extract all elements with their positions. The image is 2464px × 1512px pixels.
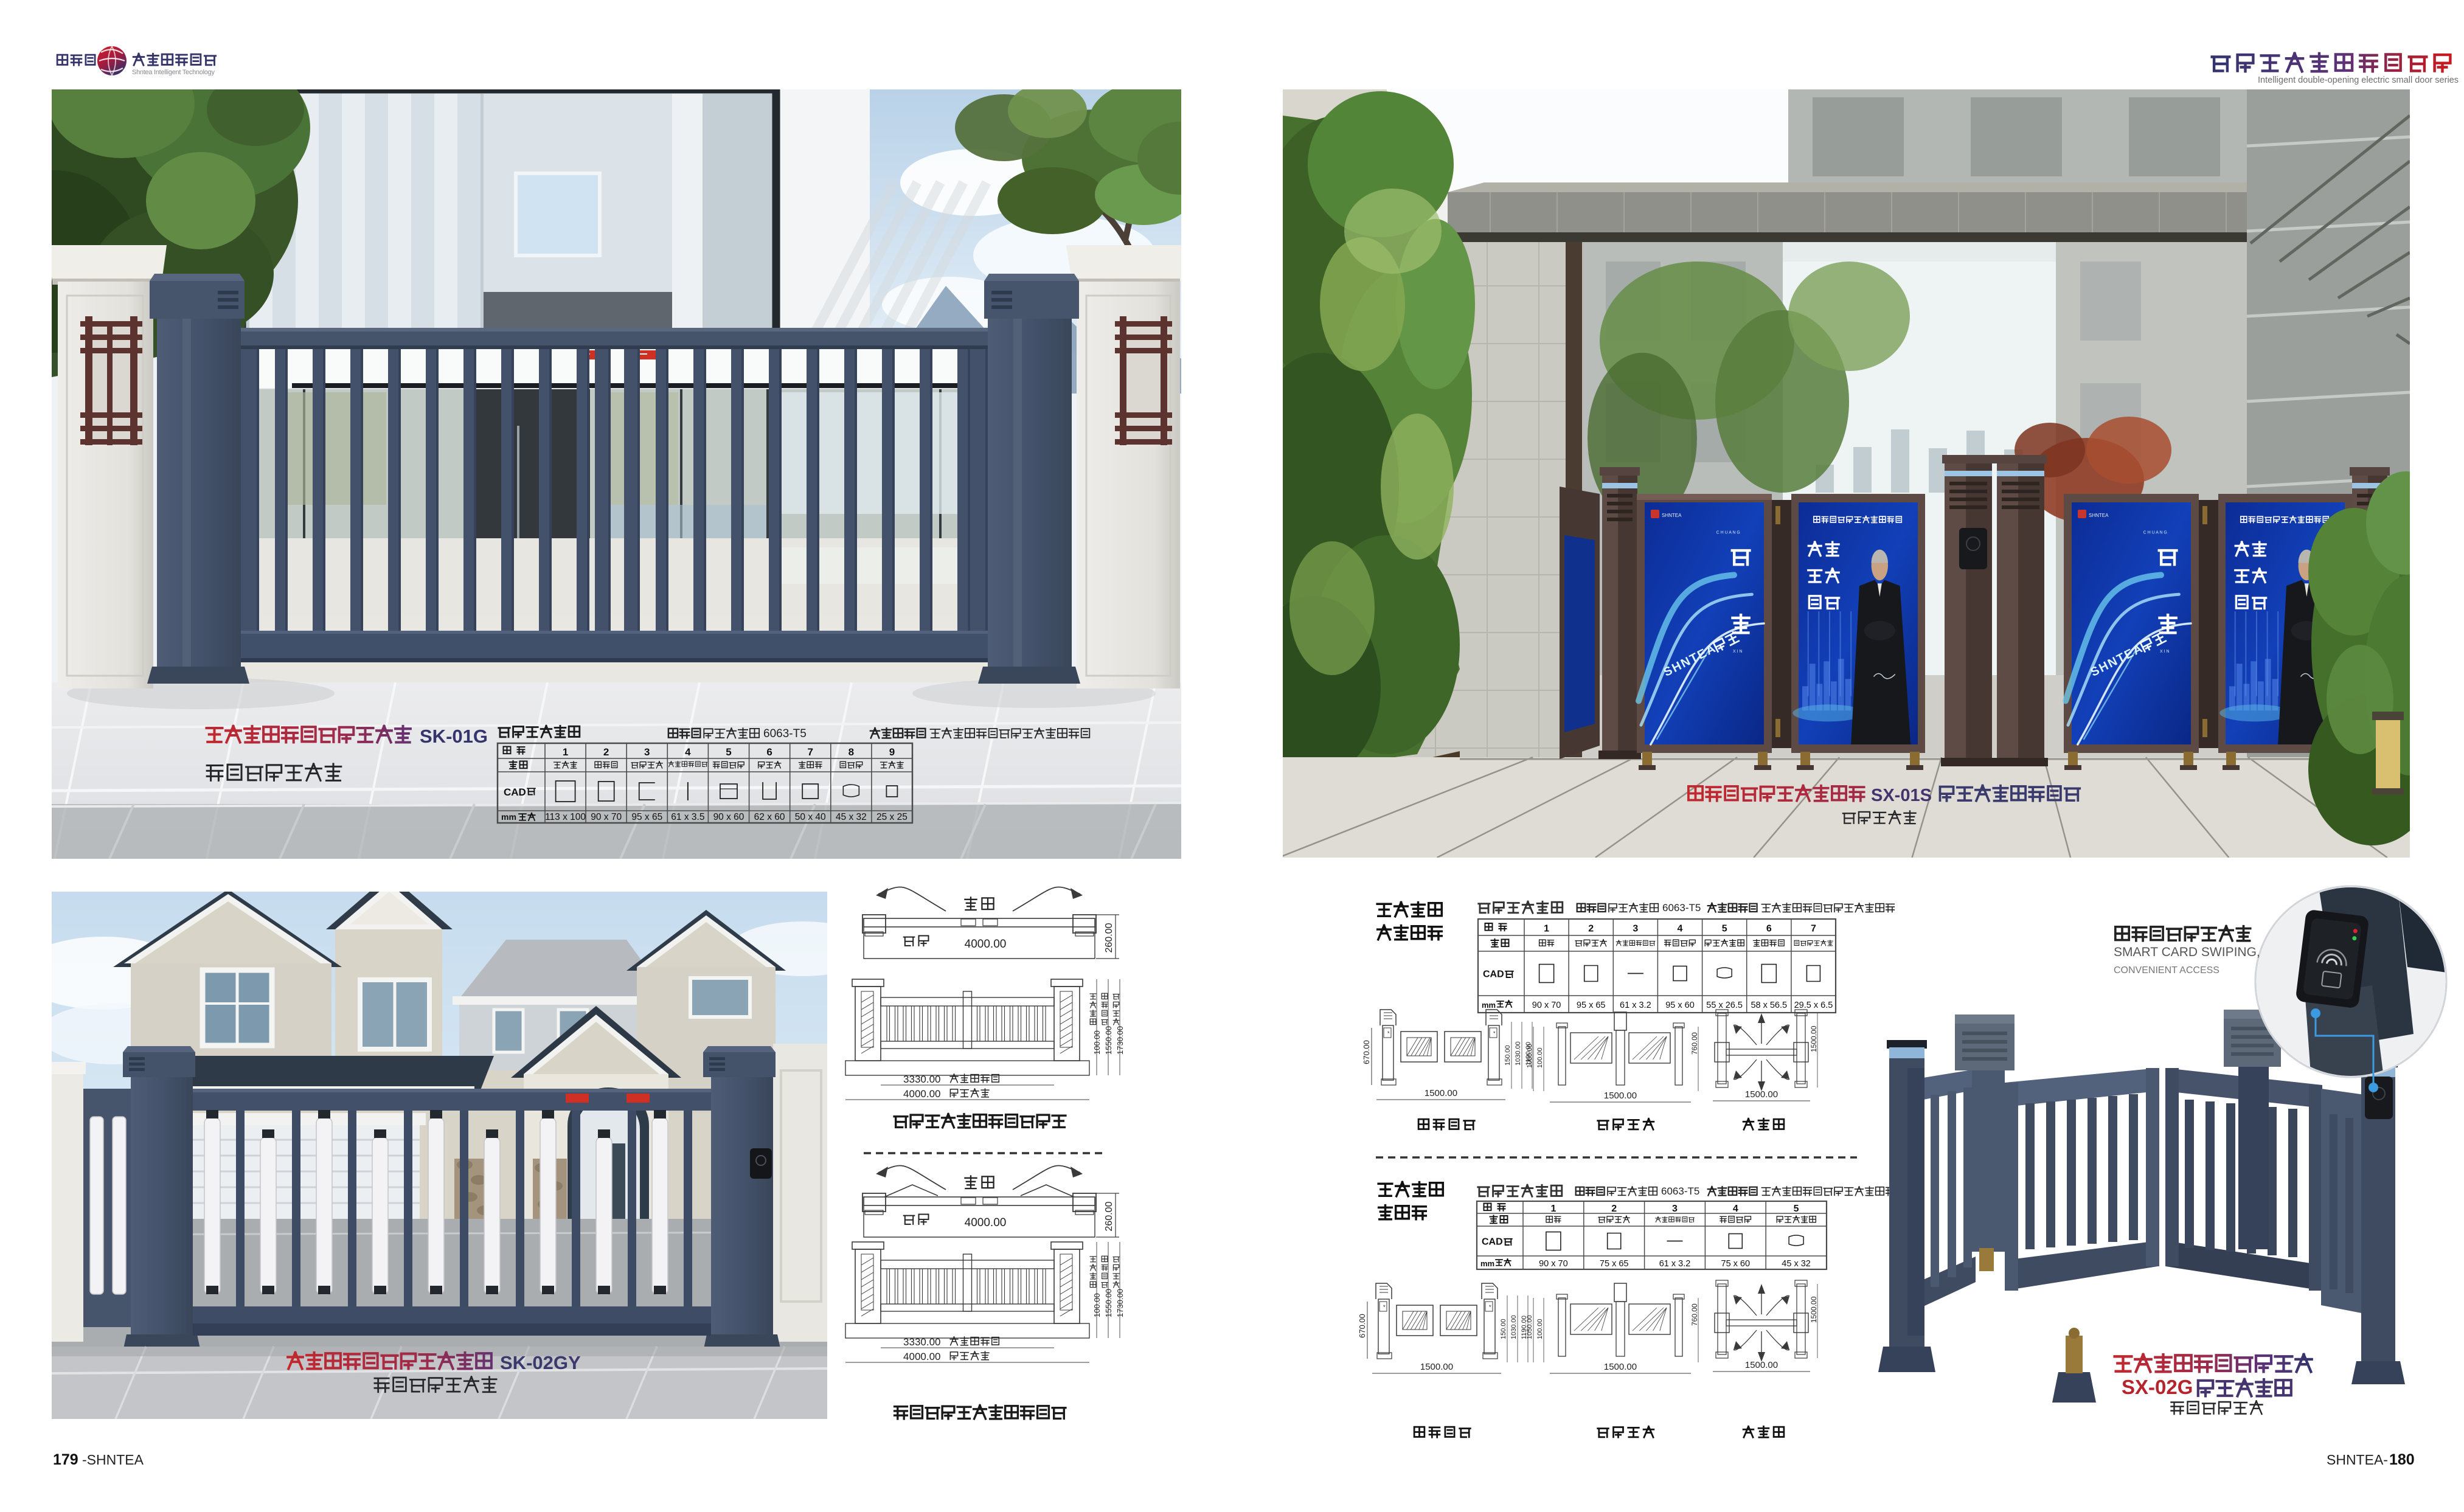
svg-text:*: *	[1493, 1030, 1496, 1036]
svg-text:90 x 70: 90 x 70	[1539, 1259, 1568, 1269]
svg-text:61 x 3.2: 61 x 3.2	[1659, 1259, 1691, 1269]
svg-text:3330.00: 3330.00	[903, 1336, 940, 1348]
svg-text:1500.00: 1500.00	[1425, 1088, 1457, 1098]
svg-text:Shntea Intelligent Technology: Shntea Intelligent Technology	[132, 69, 215, 76]
svg-text:1: 1	[563, 746, 568, 758]
svg-text:4: 4	[1733, 1204, 1738, 1214]
svg-text:-SHNTEA: -SHNTEA	[82, 1452, 144, 1468]
svg-text:1550.00: 1550.00	[1104, 1289, 1113, 1317]
svg-text:SK-02GY: SK-02GY	[500, 1352, 581, 1373]
svg-text:4000.00: 4000.00	[965, 938, 1007, 951]
svg-text:1030.00: 1030.00	[1510, 1315, 1518, 1339]
svg-text:mm: mm	[1482, 1000, 1496, 1010]
svg-text:9: 9	[889, 746, 895, 758]
svg-text:SHNTEA-: SHNTEA-	[2327, 1452, 2388, 1468]
svg-text:1550.00: 1550.00	[1104, 1026, 1113, 1055]
svg-text:90 x 70: 90 x 70	[591, 812, 622, 822]
svg-text:1500.00: 1500.00	[1810, 1296, 1818, 1323]
svg-text:61 x 3.2: 61 x 3.2	[1620, 1000, 1651, 1010]
svg-text:90 x 70: 90 x 70	[1532, 1000, 1561, 1010]
svg-text:1500.00: 1500.00	[1810, 1025, 1818, 1052]
svg-text:95 x 65: 95 x 65	[631, 812, 662, 822]
svg-text:90 x 60: 90 x 60	[713, 812, 744, 822]
svg-text:2: 2	[603, 746, 609, 758]
svg-text:260.00: 260.00	[1104, 1201, 1114, 1231]
svg-text:45 x 32: 45 x 32	[1782, 1259, 1811, 1269]
svg-text:*: *	[1383, 1304, 1386, 1310]
svg-text:5: 5	[1722, 924, 1727, 934]
svg-text:150.00: 150.00	[1504, 1045, 1511, 1066]
svg-text:1050.00: 1050.00	[1526, 1044, 1533, 1068]
svg-text:SMART CARD SWIPING,: SMART CARD SWIPING,	[2114, 945, 2260, 959]
svg-text:*: *	[1489, 1304, 1491, 1310]
svg-text:Intelligent double-opening ele: Intelligent double-opening electric smal…	[2258, 75, 2459, 85]
svg-text:61 x 3.5: 61 x 3.5	[671, 812, 704, 822]
svg-text:mm: mm	[501, 812, 516, 822]
svg-text:150.00: 150.00	[1500, 1319, 1507, 1339]
svg-text:6063-T5: 6063-T5	[1662, 902, 1701, 914]
svg-text:SX-02G: SX-02G	[2122, 1376, 2193, 1398]
svg-text:95 x 60: 95 x 60	[1665, 1000, 1695, 1010]
svg-text:1730.00: 1730.00	[1116, 1026, 1125, 1055]
svg-text:SK-01G: SK-01G	[420, 726, 488, 747]
svg-text:6063-T5: 6063-T5	[1661, 1185, 1699, 1197]
svg-text:1500.00: 1500.00	[1745, 1089, 1778, 1100]
svg-text:180: 180	[2389, 1451, 2415, 1468]
svg-text:5: 5	[1794, 1204, 1799, 1214]
svg-text:1500.00: 1500.00	[1604, 1091, 1637, 1101]
svg-text:55 x 26.5: 55 x 26.5	[1706, 1000, 1743, 1010]
svg-text:5: 5	[726, 746, 731, 758]
svg-text:3330.00: 3330.00	[903, 1073, 940, 1085]
svg-text:179: 179	[53, 1451, 78, 1468]
svg-text:6: 6	[766, 746, 772, 758]
svg-text:75 x 65: 75 x 65	[1600, 1259, 1629, 1269]
svg-text:4000.00: 4000.00	[965, 1216, 1007, 1229]
svg-text:50 x 40: 50 x 40	[795, 812, 826, 822]
svg-text:C H U A N G: C H U A N G	[2143, 531, 2167, 535]
svg-text:760.00: 760.00	[1690, 1032, 1699, 1055]
svg-text:75 x 60: 75 x 60	[1721, 1259, 1751, 1269]
svg-text:3: 3	[1633, 924, 1638, 934]
svg-text:100.00: 100.00	[1536, 1319, 1544, 1339]
svg-text:4000.00: 4000.00	[903, 1088, 940, 1100]
svg-text:25 x 25: 25 x 25	[876, 812, 908, 822]
svg-text:1: 1	[1544, 924, 1549, 934]
svg-text:CAD: CAD	[1483, 969, 1504, 980]
svg-text:1500.00: 1500.00	[1604, 1362, 1637, 1372]
svg-text:SHNTEA: SHNTEA	[2089, 513, 2109, 518]
svg-text:3: 3	[1672, 1204, 1678, 1214]
svg-text:7: 7	[1811, 924, 1816, 934]
svg-text:3: 3	[644, 746, 650, 758]
svg-text:1050.00: 1050.00	[1526, 1315, 1533, 1339]
svg-text:CAD: CAD	[504, 786, 526, 798]
svg-text:4000.00: 4000.00	[903, 1351, 940, 1362]
svg-text:mm: mm	[1480, 1259, 1494, 1268]
svg-text:2: 2	[1588, 924, 1594, 934]
svg-text:X I N: X I N	[2160, 650, 2170, 654]
svg-text:670.00: 670.00	[1362, 1040, 1371, 1064]
svg-text:*: *	[1387, 1030, 1390, 1036]
svg-text:100.00: 100.00	[1092, 1030, 1102, 1055]
svg-text:1730.00: 1730.00	[1116, 1289, 1125, 1317]
svg-text:760.00: 760.00	[1690, 1303, 1699, 1326]
svg-text:X I N: X I N	[1733, 650, 1743, 654]
svg-text:7: 7	[807, 746, 813, 758]
svg-text:8: 8	[849, 746, 854, 758]
svg-text:6: 6	[1766, 924, 1772, 934]
svg-text:670.00: 670.00	[1358, 1314, 1367, 1338]
svg-text:260.00: 260.00	[1104, 923, 1114, 952]
svg-text:C H U A N G: C H U A N G	[1716, 531, 1740, 535]
svg-text:45 x 32: 45 x 32	[836, 812, 867, 822]
svg-text:SX-01S: SX-01S	[1871, 786, 1932, 805]
svg-text:6063-T5: 6063-T5	[763, 727, 807, 740]
svg-text:CONVENIENT ACCESS: CONVENIENT ACCESS	[2114, 965, 2219, 976]
svg-text:1030.00: 1030.00	[1515, 1041, 1522, 1066]
svg-text:100.00: 100.00	[1092, 1293, 1102, 1317]
svg-text:100.00: 100.00	[1536, 1047, 1544, 1068]
svg-text:2: 2	[1611, 1204, 1617, 1214]
svg-text:95 x 65: 95 x 65	[1577, 1000, 1606, 1010]
svg-text:62 x 60: 62 x 60	[754, 812, 785, 822]
svg-text:113 x 100: 113 x 100	[545, 812, 586, 822]
svg-text:1500.00: 1500.00	[1420, 1362, 1453, 1372]
svg-text:SHNTEA: SHNTEA	[1662, 513, 1682, 518]
svg-text:CAD: CAD	[1482, 1237, 1503, 1247]
svg-text:1: 1	[1550, 1204, 1556, 1214]
svg-text:4: 4	[1678, 924, 1683, 934]
svg-text:29.5 x 6.5: 29.5 x 6.5	[1794, 1000, 1833, 1010]
svg-text:4: 4	[685, 746, 691, 758]
svg-text:1500.00: 1500.00	[1745, 1360, 1778, 1370]
svg-text:58 x 56.5: 58 x 56.5	[1751, 1000, 1787, 1010]
